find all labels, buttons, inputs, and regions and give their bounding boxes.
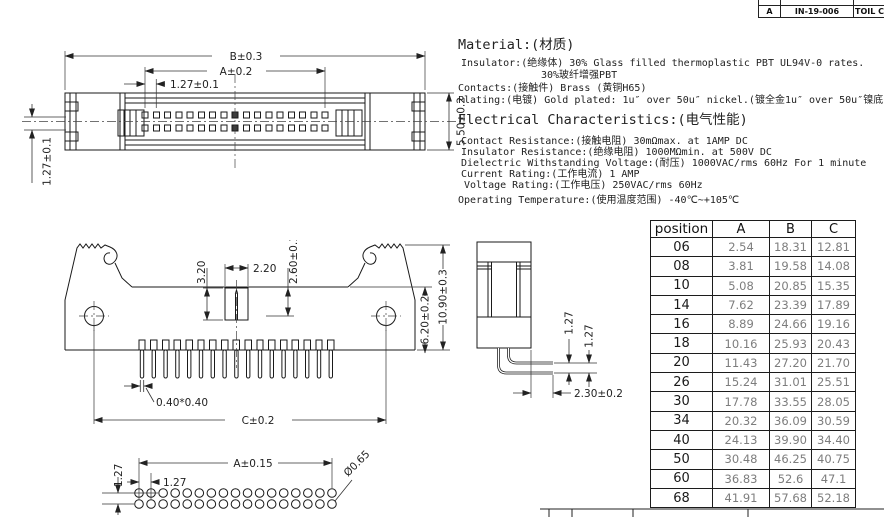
revision-strip: A IN-19-006 TOIL C — [758, 0, 884, 18]
table-row: 4024.1339.9034.40 — [651, 430, 856, 449]
pin-row-front-view — [139, 340, 334, 378]
col-header-C: C — [812, 221, 856, 238]
table-row: 3420.3236.0930.59 — [651, 411, 856, 430]
document-code: IN-19-006 — [781, 5, 854, 17]
electrical-heading: Electrical Characteristics:(电气性能) — [458, 108, 748, 128]
table-header-row: position A B C — [651, 221, 856, 238]
col-header-A: A — [713, 221, 770, 238]
table-row: 062.5418.3112.81 — [651, 238, 856, 257]
polarization-key-right — [336, 110, 362, 136]
datasheet-page: A IN-19-006 TOIL C Material:(材质) Insulat… — [0, 0, 884, 517]
dim-label-A-footprint: A±0.15 — [233, 458, 272, 470]
col-header-B: B — [770, 221, 812, 238]
material-line: Plating:(电镀) Gold plated: 1u″ over 50u″ … — [458, 91, 884, 106]
dim-label-mating-height: 6.20±0.2 — [420, 296, 432, 345]
material-line: Insulator:(绝缘体) 30% Glass filled thermop… — [461, 54, 864, 69]
dim-label-row-spacing: 1.27 — [113, 464, 125, 487]
dim-label-hole-pitch: 1.27 — [163, 477, 186, 489]
material-heading: Material:(材质) — [458, 33, 574, 53]
latch-ear-left — [65, 244, 117, 350]
dimensions-front-view: 3.20 2.20 2.60±0.15 6.20±0.2 10.9 — [94, 240, 450, 427]
electrical-line: Voltage Rating:(工作电压) 250VAC/rms 60Hz — [464, 176, 703, 191]
table-row: 3017.7833.5528.05 — [651, 392, 856, 411]
dim-label-B: B±0.3 — [230, 51, 263, 63]
electrical-line: Operating Temperature:(使用温度范围) -40℃~+105… — [458, 191, 739, 206]
connector-body-end-view — [477, 242, 553, 373]
dim-label-A: A±0.2 — [220, 66, 253, 78]
dimensions-footprint: A±0.15 1.27 1.27 Ø0.65 — [102, 448, 373, 515]
revision-title: TOIL C — [854, 5, 884, 17]
front-view-drawing: 3.20 2.20 2.60±0.15 6.20±0.2 10.9 — [20, 240, 470, 430]
footprint-drawing: A±0.15 1.27 1.27 Ø0.65 — [90, 445, 410, 517]
dim-label-pin-pitch-2: 1.27 — [584, 324, 596, 347]
dim-label-pitch: 1.27±0.1 — [170, 79, 219, 91]
top-view-drawing: B±0.3 A±0.2 1.27±0.1 5.50±0.2 1.27±0.1 — [20, 38, 470, 218]
dimensions-end-view: 1.27 1.27 2.30±0.2 — [513, 309, 623, 400]
dim-label-hole-diameter: Ø0.65 — [342, 448, 373, 479]
dim-label-height: 5.50±0.2 — [456, 97, 468, 146]
dim-label-pin-pitch-1: 1.27 — [564, 311, 576, 334]
dim-label-row-pitch: 1.27±0.1 — [42, 137, 54, 186]
table-row: 6036.8352.647.1 — [651, 469, 856, 488]
table-row: 2615.2431.0125.51 — [651, 373, 856, 392]
bent-pin-lower — [499, 348, 554, 373]
dim-label-key-height: 3.20 — [196, 261, 208, 284]
hole-row2 — [135, 500, 337, 509]
table-row: 105.0820.8515.35 — [651, 276, 856, 295]
dim-label-C: C±0.2 — [242, 415, 275, 427]
dim-label-pin-size: 0.40*0.40 — [156, 397, 208, 409]
dim-table-body: 062.5418.3112.81083.8119.5814.08105.0820… — [651, 238, 856, 508]
end-view-drawing: 1.27 1.27 2.30±0.2 — [455, 235, 645, 435]
revision-letter: A — [759, 5, 781, 17]
latch-ear-right — [348, 244, 415, 350]
table-row: 147.6223.3917.89 — [651, 295, 856, 314]
table-row: 2011.4327.2021.70 — [651, 353, 856, 372]
title-block-top-edge — [540, 503, 884, 517]
hole-row1 — [135, 489, 337, 498]
dim-label-tail-length: 2.30±0.2 — [574, 388, 623, 400]
polarization-key-left — [118, 110, 144, 136]
dim-label-key-width: 2.20 — [253, 263, 276, 275]
col-header-position: position — [651, 221, 713, 238]
table-row: 1810.1625.9320.43 — [651, 334, 856, 353]
table-row: 168.8924.6619.16 — [651, 315, 856, 334]
table-row: 5030.4846.2540.75 — [651, 450, 856, 469]
dim-label-slot-depth: 2.60±0.15 — [288, 240, 300, 284]
dim-label-total-height: 10.90±0.3 — [438, 269, 450, 325]
table-row: 083.8119.5814.08 — [651, 257, 856, 276]
dimensions-table: position A B C 062.5418.3112.81083.8119.… — [650, 220, 856, 508]
